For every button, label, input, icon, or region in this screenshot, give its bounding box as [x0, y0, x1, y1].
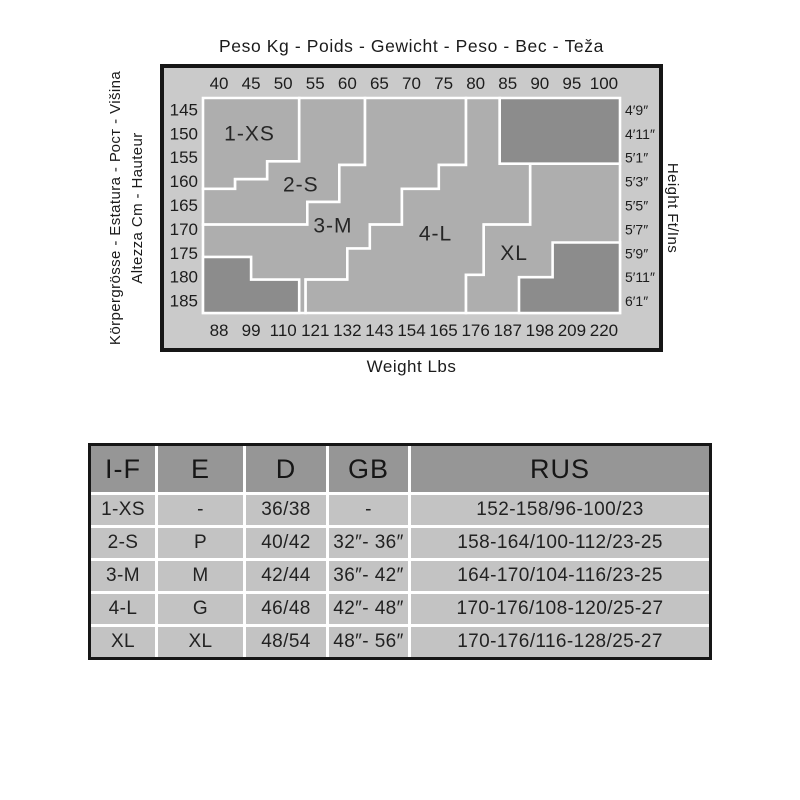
- kg-tick: 65: [370, 74, 389, 93]
- left-axis-label-inner-line: Altezza Cm - Hauteur: [127, 48, 149, 368]
- table-cell: 158-164/100-112/23-25: [411, 528, 709, 558]
- kg-tick: 90: [530, 74, 549, 93]
- cm-tick: 160: [170, 172, 198, 191]
- size-guide-page: Peso Kg - Poids - Gewicht - Peso - Вес -…: [0, 0, 800, 800]
- table-row-size-label: XL: [91, 627, 155, 657]
- zone-label-l: 4-L: [419, 223, 452, 246]
- kg-tick: 75: [434, 74, 453, 93]
- table-cell: 40/42: [246, 528, 326, 558]
- lbs-tick: 176: [461, 321, 489, 340]
- ftin-tick: 5′7″: [625, 221, 648, 237]
- table-cell: 32″- 36″: [329, 528, 408, 558]
- table-cell: 48″- 56″: [329, 627, 408, 657]
- ftin-tick: 5′5″: [625, 198, 648, 214]
- table-row-size-label: 4-L: [91, 594, 155, 624]
- size-zone-chart-frame: 1-XS2-S3-M4-LXL4045505560657075808590951…: [160, 64, 663, 352]
- table-cell: 46/48: [246, 594, 326, 624]
- ftin-tick: 5′9″: [625, 245, 648, 261]
- kg-tick: 60: [338, 74, 357, 93]
- table-cell: XL: [158, 627, 243, 657]
- table-header-gb: GB: [329, 446, 408, 492]
- table-cell: M: [158, 561, 243, 591]
- size-zone-chart: 1-XS2-S3-M4-LXL4045505560657075808590951…: [164, 68, 659, 348]
- excluded-region-top-right: [500, 98, 620, 164]
- kg-tick: 50: [274, 74, 293, 93]
- lbs-tick: 154: [397, 321, 425, 340]
- ftin-tick: 6′1″: [625, 293, 648, 309]
- lbs-tick: 121: [301, 321, 329, 340]
- left-axis-label-height-cm: Körpergrösse - Estatura - Рост - Višina …: [105, 48, 149, 368]
- zone-label-s: 2-S: [283, 174, 319, 197]
- cm-tick: 170: [170, 220, 198, 239]
- zone-label-xs: 1-XS: [224, 122, 275, 145]
- kg-tick: 85: [498, 74, 517, 93]
- table-cell: 36″- 42″: [329, 561, 408, 591]
- lbs-tick: 132: [333, 321, 361, 340]
- lbs-tick: 110: [270, 321, 297, 340]
- ftin-tick: 4′11″: [625, 126, 655, 142]
- lbs-tick: 187: [494, 321, 522, 340]
- table-row-size-label: 1-XS: [91, 495, 155, 525]
- cm-tick: 175: [170, 244, 198, 263]
- table-cell: 170-176/116-128/25-27: [411, 627, 709, 657]
- table-cell: 36/38: [246, 495, 326, 525]
- table-cell: -: [158, 495, 243, 525]
- table-cell: G: [158, 594, 243, 624]
- kg-tick: 95: [562, 74, 581, 93]
- ftin-tick: 5′3″: [625, 174, 648, 190]
- lbs-tick: 209: [558, 321, 586, 340]
- lbs-tick: 143: [365, 321, 393, 340]
- table-header-rus: RUS: [411, 446, 709, 492]
- lbs-tick: 88: [210, 321, 229, 340]
- bottom-axis-label-weight-lbs: Weight Lbs: [160, 357, 663, 377]
- zone-label-xl: XL: [500, 242, 528, 265]
- left-axis-label-outer-line: Körpergrösse - Estatura - Рост - Višina: [105, 48, 127, 368]
- kg-tick: 100: [590, 74, 618, 93]
- lbs-tick: 99: [242, 321, 261, 340]
- table-cell: P: [158, 528, 243, 558]
- table-cell: 170-176/108-120/25-27: [411, 594, 709, 624]
- cm-tick: 185: [170, 292, 198, 311]
- table-cell: 42″- 48″: [329, 594, 408, 624]
- kg-tick: 70: [402, 74, 421, 93]
- lbs-tick: 165: [429, 321, 457, 340]
- cm-tick: 180: [170, 268, 198, 287]
- table-cell: 164-170/104-116/23-25: [411, 561, 709, 591]
- cm-tick: 145: [170, 100, 198, 119]
- lbs-tick: 220: [590, 321, 618, 340]
- table-header-e: E: [158, 446, 243, 492]
- cm-tick: 155: [170, 148, 198, 167]
- cm-tick: 150: [170, 124, 198, 143]
- table-cell: 42/44: [246, 561, 326, 591]
- table-cell: 152-158/96-100/23: [411, 495, 709, 525]
- ftin-tick: 5′1″: [625, 150, 648, 166]
- cm-tick: 165: [170, 196, 198, 215]
- ftin-tick: 4′9″: [625, 102, 648, 118]
- size-conversion-table: I-FEDGBRUS1-XS-36/38-152-158/96-100/232-…: [88, 443, 712, 660]
- table-cell: 48/54: [246, 627, 326, 657]
- kg-tick: 40: [210, 74, 229, 93]
- table-cell: -: [329, 495, 408, 525]
- kg-tick: 80: [466, 74, 485, 93]
- zone-label-m: 3-M: [313, 214, 352, 237]
- table-row-size-label: 2-S: [91, 528, 155, 558]
- kg-tick: 45: [242, 74, 261, 93]
- lbs-tick: 198: [526, 321, 554, 340]
- right-axis-label-height-ftins: Height Ft/Ins: [663, 128, 681, 288]
- table-header-d: D: [246, 446, 326, 492]
- ftin-tick: 5′11″: [625, 269, 655, 285]
- table-header-i-f: I-F: [91, 446, 155, 492]
- chart-title-weight-kg: Peso Kg - Poids - Gewicht - Peso - Вес -…: [160, 36, 663, 57]
- kg-tick: 55: [306, 74, 325, 93]
- table-row-size-label: 3-M: [91, 561, 155, 591]
